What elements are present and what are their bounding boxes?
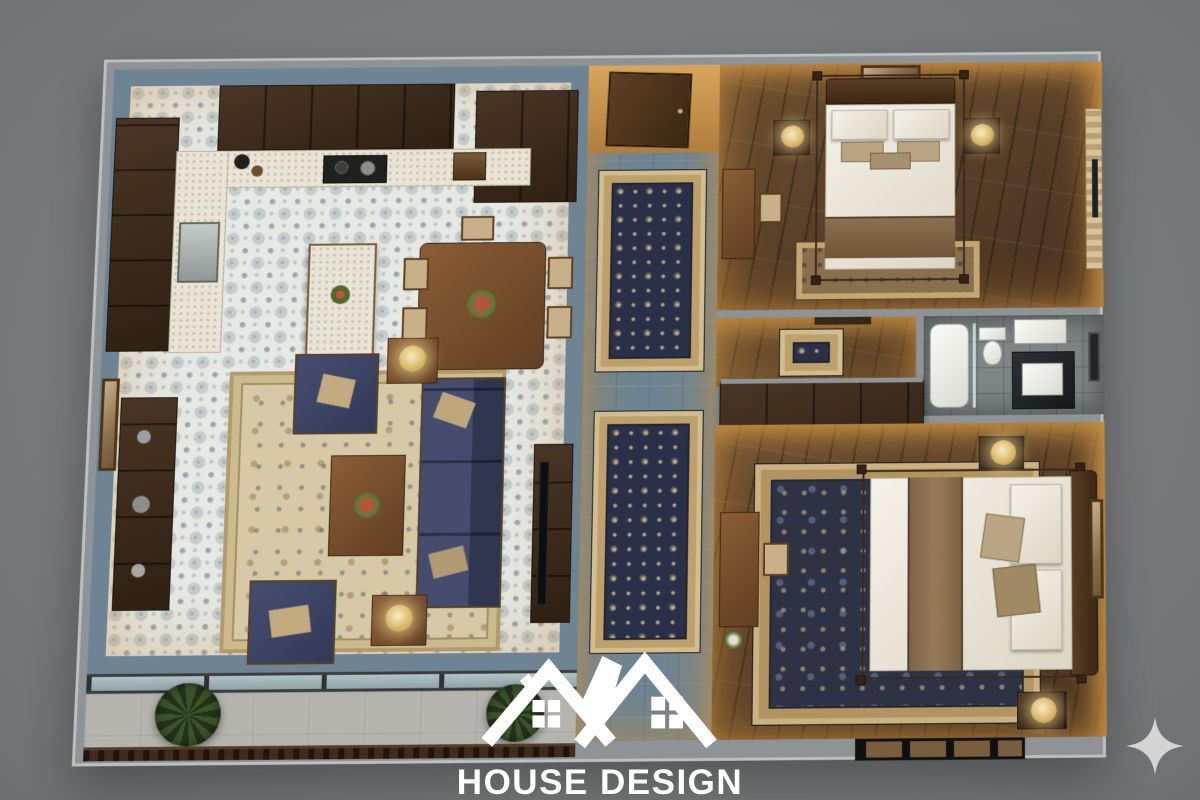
bed-post (959, 274, 969, 284)
bathroom-window (1088, 332, 1100, 382)
kitchen-upper-cabinets (217, 84, 455, 151)
sparkle-icon (1126, 717, 1184, 775)
logo-title: HOUSE DESIGN (450, 765, 750, 800)
bed-post (857, 464, 867, 474)
bed-runner-blanket (907, 477, 963, 671)
armchair-pillow (269, 605, 311, 638)
dining-chair (461, 216, 495, 241)
headboard (826, 78, 955, 105)
hallway (575, 65, 720, 742)
dining-chair (546, 306, 572, 339)
desk-chair (759, 193, 783, 223)
cooktop (323, 155, 388, 184)
bedroom-window-band (855, 737, 1025, 760)
kitchen-living-open-area (87, 66, 589, 674)
pillow (831, 110, 887, 140)
pillow (893, 109, 949, 139)
bedroom-wall-art (1089, 499, 1104, 599)
curtained-window (1085, 108, 1104, 270)
kitchen-island (305, 243, 377, 367)
bed-post (813, 71, 823, 80)
bedroom-desk (719, 512, 760, 628)
window-glass (1092, 159, 1098, 217)
sofa-pillow (433, 392, 476, 429)
bedroom-2 (711, 422, 1107, 740)
bed-post (959, 70, 969, 79)
dining-chair (401, 307, 427, 340)
glass-partition (973, 323, 976, 407)
desk-chair (763, 543, 789, 576)
entry-door (605, 72, 692, 149)
hall-runner-rug (589, 410, 704, 654)
vestibule-rug (779, 328, 844, 376)
toilet-tank (979, 327, 1006, 341)
hall-runner-rug (595, 169, 708, 372)
bed-throw-blanket (825, 216, 956, 259)
coffee-table-flowers (354, 493, 380, 518)
accent-pillow (870, 152, 911, 169)
sofa-pillow (428, 545, 468, 578)
shower-tray (1014, 319, 1067, 344)
bed-post (811, 275, 821, 285)
vestibule-door (814, 317, 871, 325)
bedroom-1 (717, 61, 1104, 310)
logo: HOUSE DESIGN construction & interior (450, 652, 750, 800)
bedroom-desk (721, 169, 755, 260)
coffee-table (328, 455, 406, 557)
accent-pillow (980, 513, 1025, 562)
accent-pillow (992, 564, 1041, 617)
armchair (247, 580, 337, 665)
dining-chair (403, 258, 429, 290)
kitchen-sink (177, 222, 220, 283)
living-wall-art (98, 378, 120, 470)
bathtub (930, 324, 969, 408)
bedside-lamp (971, 124, 994, 147)
bedside-lamp (991, 440, 1017, 465)
kitchen-tall-cupboard (474, 90, 579, 203)
page: { "branding": { "title": "HOUSE DESIGN",… (0, 0, 1200, 800)
dining-chair (547, 257, 573, 289)
vestibule (716, 316, 916, 386)
bathroom (924, 315, 1105, 416)
bedside-lamp (1031, 697, 1057, 723)
door-handle (678, 109, 683, 114)
twin-house-roofs-icon (482, 652, 718, 756)
counter-appliance (453, 152, 487, 180)
armchair-pillow (316, 374, 355, 409)
bed-post (855, 675, 865, 685)
flower-vase (724, 631, 742, 649)
vanity-basin (1022, 363, 1063, 396)
sofa (415, 377, 506, 608)
toilet-bowl (983, 340, 1003, 365)
armchair (292, 353, 379, 434)
